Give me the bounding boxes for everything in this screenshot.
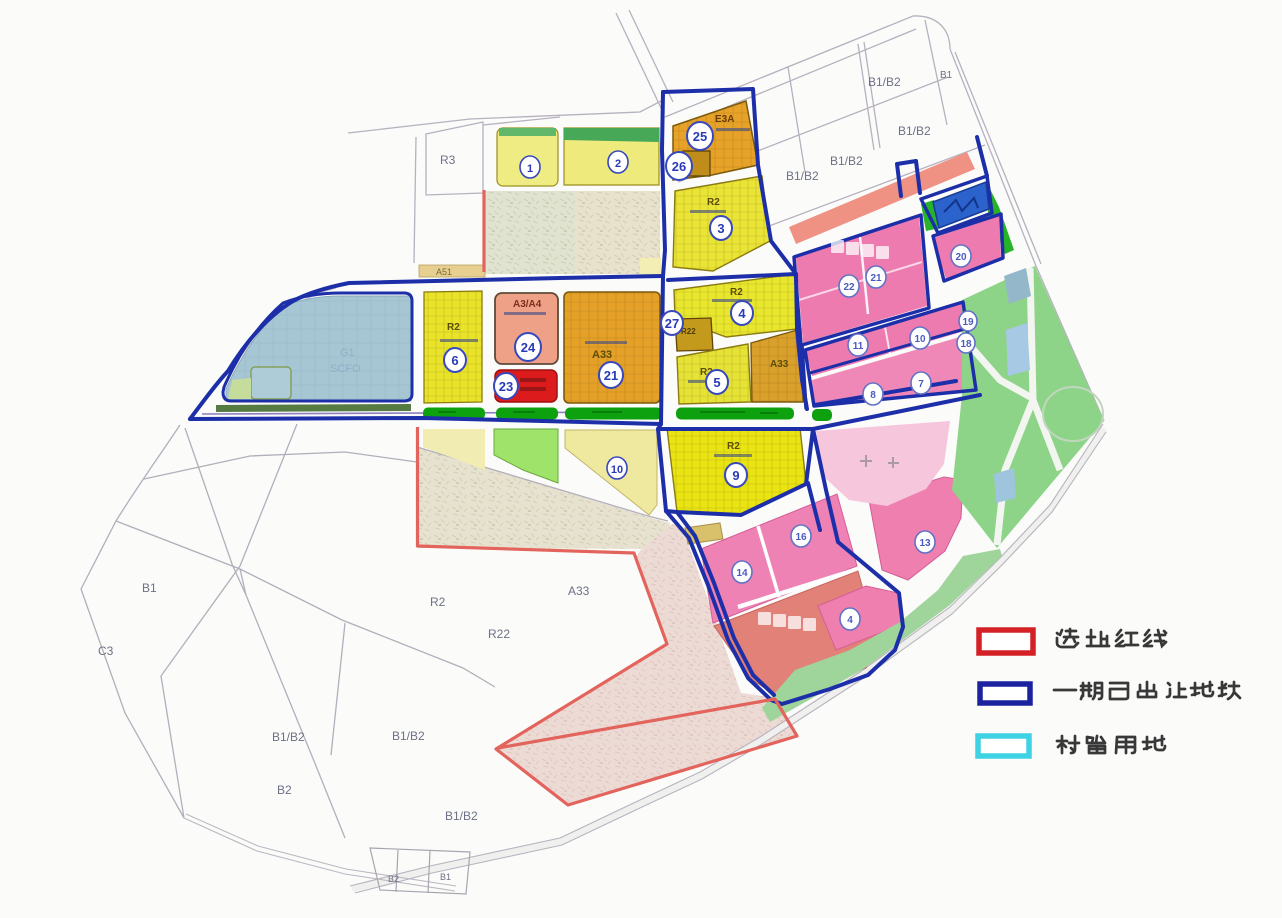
svg-text:B1: B1 (940, 70, 953, 81)
svg-text:23: 23 (499, 379, 513, 394)
svg-text:7: 7 (918, 379, 924, 390)
svg-text:SCFO: SCFO (330, 363, 361, 375)
svg-text:A33: A33 (568, 584, 590, 598)
svg-text:C3: C3 (98, 644, 114, 658)
svg-text:14: 14 (736, 568, 748, 579)
svg-text:9: 9 (732, 468, 739, 483)
svg-text:R2: R2 (447, 322, 460, 333)
svg-text:4: 4 (738, 306, 746, 321)
svg-text:G1: G1 (340, 347, 355, 359)
svg-text:R2: R2 (430, 595, 446, 609)
svg-text:A33: A33 (592, 349, 612, 361)
svg-text:R2: R2 (730, 287, 743, 298)
svg-text:21: 21 (870, 273, 882, 284)
svg-text:6: 6 (451, 353, 458, 368)
svg-text:B1/B2: B1/B2 (786, 169, 819, 183)
svg-text:25: 25 (693, 129, 707, 144)
svg-text:26: 26 (672, 159, 686, 174)
svg-text:18: 18 (960, 339, 972, 350)
svg-text:R22: R22 (681, 327, 696, 336)
svg-text:22: 22 (843, 282, 855, 293)
svg-text:A3/A4: A3/A4 (513, 299, 542, 310)
svg-text:B2: B2 (388, 874, 399, 884)
svg-text:3: 3 (717, 221, 724, 236)
svg-text:B1: B1 (440, 872, 451, 882)
svg-text:B1/B2: B1/B2 (445, 809, 478, 823)
svg-text:27: 27 (665, 316, 679, 331)
svg-text:1: 1 (527, 163, 533, 175)
svg-text:B2: B2 (277, 783, 292, 797)
svg-text:2: 2 (615, 158, 621, 170)
svg-text:8: 8 (870, 390, 876, 401)
svg-text:B1/B2: B1/B2 (392, 729, 425, 743)
svg-text:A51: A51 (436, 267, 452, 277)
svg-text:20: 20 (955, 252, 967, 263)
svg-text:B1/B2: B1/B2 (898, 124, 931, 138)
svg-text:11: 11 (853, 341, 864, 352)
svg-text:B1/B2: B1/B2 (868, 75, 901, 89)
svg-text:E3A: E3A (715, 114, 734, 125)
svg-text:5: 5 (713, 375, 720, 390)
svg-text:R22: R22 (488, 627, 510, 641)
svg-text:R3: R3 (440, 153, 456, 167)
svg-text:R2: R2 (707, 197, 720, 208)
svg-text:R2: R2 (727, 441, 740, 452)
svg-text:24: 24 (521, 340, 536, 355)
svg-text:21: 21 (604, 368, 618, 383)
svg-text:10: 10 (914, 334, 926, 345)
svg-text:19: 19 (962, 317, 974, 328)
svg-text:10: 10 (611, 464, 623, 476)
svg-text:B1/B2: B1/B2 (272, 730, 305, 744)
svg-text:A33: A33 (770, 359, 789, 370)
svg-text:B1: B1 (142, 581, 157, 595)
svg-text:13: 13 (919, 538, 931, 549)
svg-text:16: 16 (795, 532, 807, 543)
svg-text:4: 4 (847, 615, 853, 626)
svg-text:B1/B2: B1/B2 (830, 154, 863, 168)
